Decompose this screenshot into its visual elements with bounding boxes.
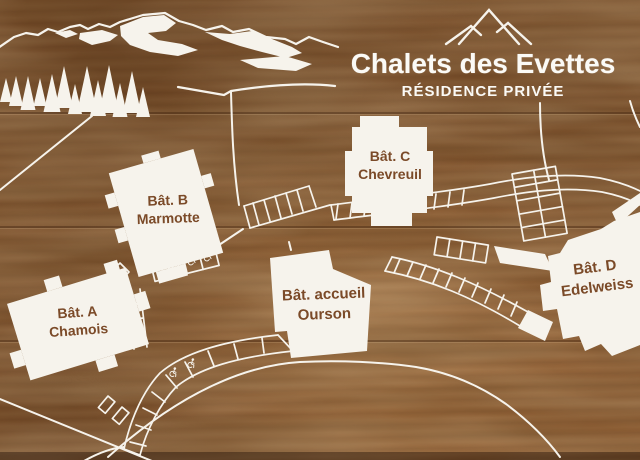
building-c-name: Chevreuil xyxy=(338,165,442,183)
header: Chalets des Evettes RÉSIDENCE PRIVÉE xyxy=(330,49,636,100)
building-a-label: Bât. A Chamois xyxy=(25,299,131,343)
wooden-map-sign: Chalets des Evettes RÉSIDENCE PRIVÉE Bât… xyxy=(0,0,640,460)
building-b-label: Bât. B Marmotte xyxy=(115,189,220,229)
building-accueil-label: Bât. accueil Ourson xyxy=(261,283,386,326)
building-c-label: Bât. C Chevreuil xyxy=(338,147,442,183)
page-title: Chalets des Evettes xyxy=(330,49,636,80)
building-c-code: Bât. C xyxy=(338,147,442,165)
page-subtitle: RÉSIDENCE PRIVÉE xyxy=(330,83,636,100)
building-b-name: Marmotte xyxy=(116,207,221,229)
